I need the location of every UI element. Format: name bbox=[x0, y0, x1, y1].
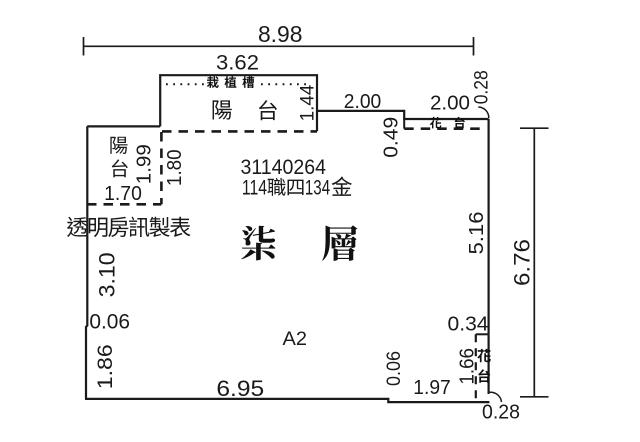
svg-text:0.28: 0.28 bbox=[471, 70, 493, 104]
svg-text:1.99: 1.99 bbox=[133, 144, 156, 184]
svg-text:1.86: 1.86 bbox=[94, 344, 117, 389]
svg-text:2.00: 2.00 bbox=[344, 91, 382, 113]
svg-text:0.06: 0.06 bbox=[384, 351, 405, 386]
svg-text:8.98: 8.98 bbox=[258, 21, 303, 47]
svg-text:3.62: 3.62 bbox=[216, 52, 259, 75]
svg-text:6.76: 6.76 bbox=[510, 239, 535, 286]
svg-text:3.10: 3.10 bbox=[95, 252, 120, 297]
svg-text:A2: A2 bbox=[283, 329, 308, 350]
svg-text:0.06: 0.06 bbox=[89, 311, 130, 334]
svg-text:0.49: 0.49 bbox=[381, 117, 403, 158]
svg-text:1.80: 1.80 bbox=[163, 149, 186, 186]
svg-text:134: 134 bbox=[305, 177, 330, 200]
svg-text:0.34: 0.34 bbox=[448, 314, 489, 336]
svg-text:6.95: 6.95 bbox=[216, 376, 264, 401]
svg-text:1.70: 1.70 bbox=[104, 182, 142, 205]
svg-text:2.00: 2.00 bbox=[430, 93, 470, 115]
svg-text:1.97: 1.97 bbox=[413, 377, 451, 399]
svg-text:1.44: 1.44 bbox=[296, 85, 318, 122]
svg-text:114: 114 bbox=[242, 177, 267, 200]
svg-text:1.66: 1.66 bbox=[456, 348, 478, 384]
svg-text:0.28: 0.28 bbox=[482, 400, 520, 423]
svg-text:31140264: 31140264 bbox=[241, 156, 327, 179]
svg-text:5.16: 5.16 bbox=[466, 212, 488, 255]
